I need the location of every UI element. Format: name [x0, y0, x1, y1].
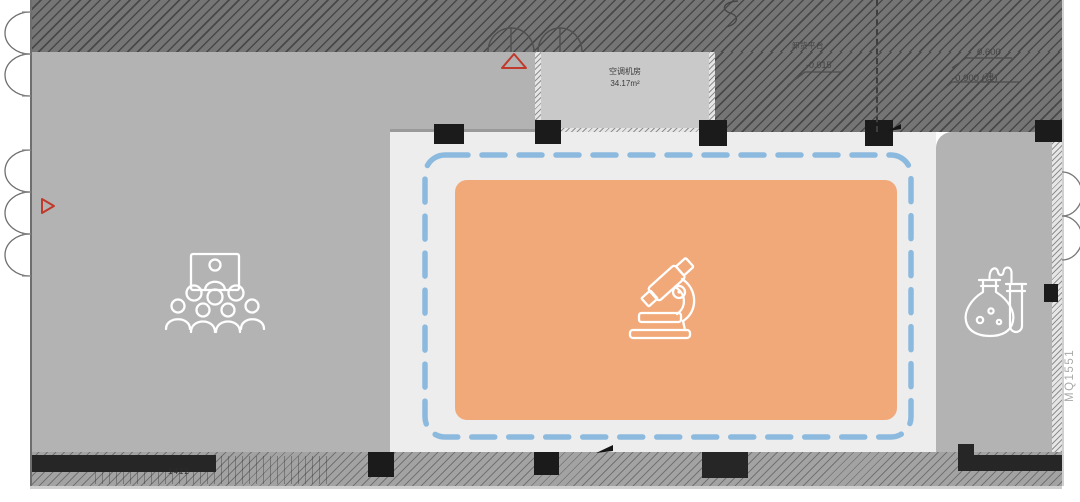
ac-room-name: 空调机房: [609, 67, 641, 76]
column: [699, 120, 727, 146]
wall-block: [1044, 284, 1058, 302]
section-arrow: [888, 124, 902, 132]
column: [368, 452, 394, 477]
microscope-icon: [622, 252, 712, 344]
ac-room-label: 空调机房 34.17m²: [541, 66, 709, 90]
section-arrow: [596, 445, 614, 454]
bottom-wall-bar: [702, 452, 748, 478]
door-arcs-top: [486, 24, 584, 53]
up-triangle-marker: [500, 52, 528, 70]
floor-plan: 空调机房 34.17m²: [0, 0, 1080, 502]
curtain-wall-tag: MQ1551: [1064, 349, 1076, 402]
audience-presentation-icon: [165, 248, 265, 333]
bottom-dimension: 1412: [168, 467, 190, 476]
column: [535, 120, 561, 144]
bottom-outline: [30, 486, 1062, 489]
column: [534, 452, 559, 475]
stair-squiggle: [712, 0, 744, 30]
door-arcs-left: [0, 0, 32, 290]
ac-room: 空调机房 34.17m²: [541, 52, 709, 130]
right-triangle-marker: [40, 197, 56, 215]
lab-flask-icon: [958, 258, 1032, 344]
elevation-leader-lines: [780, 30, 1040, 100]
bottom-wall-bar: [958, 455, 1062, 471]
ac-room-area: 34.17m²: [610, 79, 639, 88]
column: [1035, 120, 1062, 142]
column: [434, 124, 464, 144]
door-arcs-right: [1061, 170, 1080, 262]
